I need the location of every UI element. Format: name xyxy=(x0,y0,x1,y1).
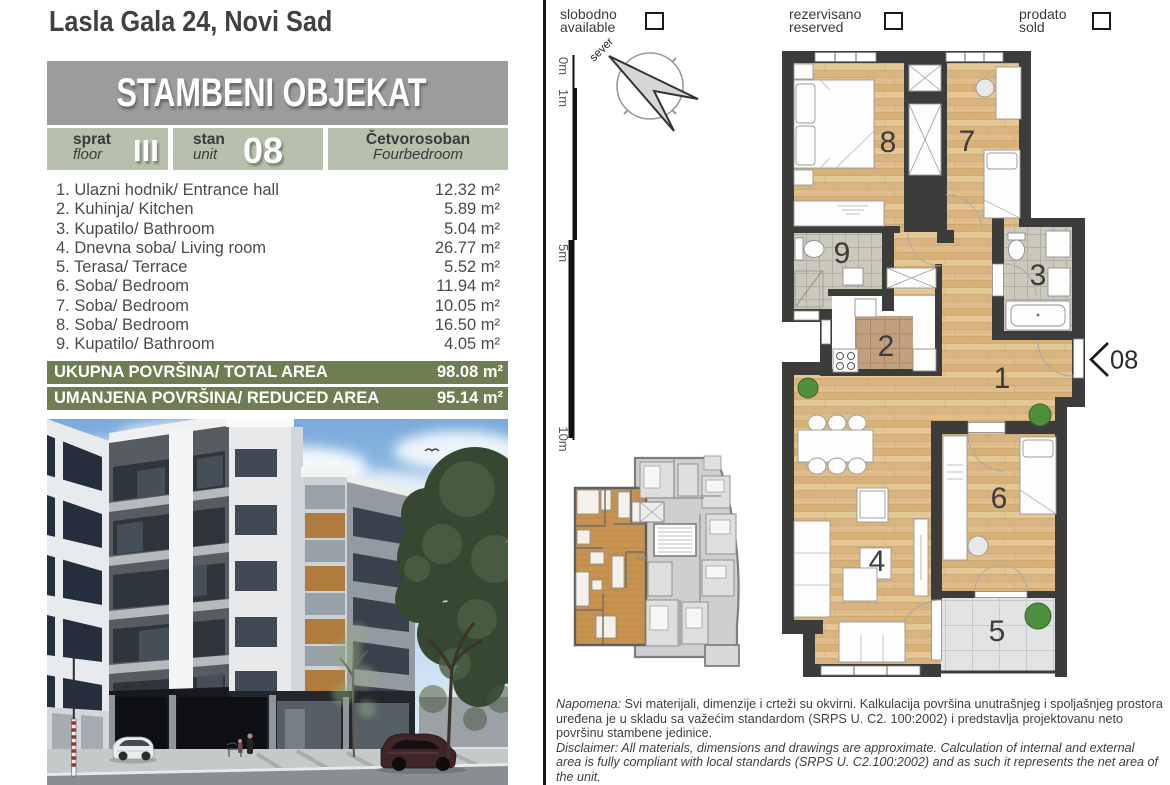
svg-text:3: 3 xyxy=(1030,259,1047,292)
svg-text:5m: 5m xyxy=(556,244,571,262)
svg-text:1m: 1m xyxy=(556,89,571,107)
svg-text:1: 1 xyxy=(994,362,1011,395)
svg-text:08: 08 xyxy=(1110,347,1138,375)
svg-text:6: 6 xyxy=(991,482,1008,515)
svg-text:4: 4 xyxy=(869,545,886,578)
svg-text:8: 8 xyxy=(880,126,897,159)
svg-text:2: 2 xyxy=(878,330,895,363)
svg-text:5: 5 xyxy=(989,615,1006,648)
svg-text:10m: 10m xyxy=(556,426,571,451)
svg-text:7: 7 xyxy=(959,125,976,158)
svg-text:9: 9 xyxy=(834,237,851,270)
svg-text:0m: 0m xyxy=(556,57,571,75)
